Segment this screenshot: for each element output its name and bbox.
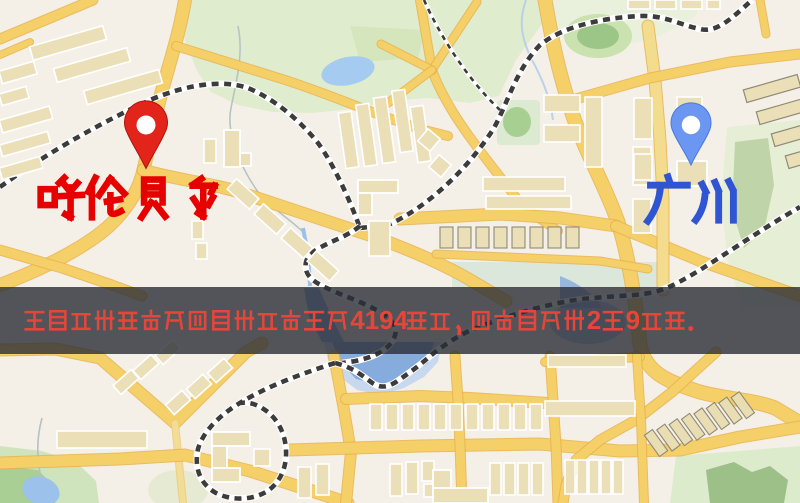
svg-text:9: 9 [626, 305, 640, 335]
svg-text:4194: 4194 [350, 305, 408, 335]
svg-text:2: 2 [587, 305, 601, 335]
